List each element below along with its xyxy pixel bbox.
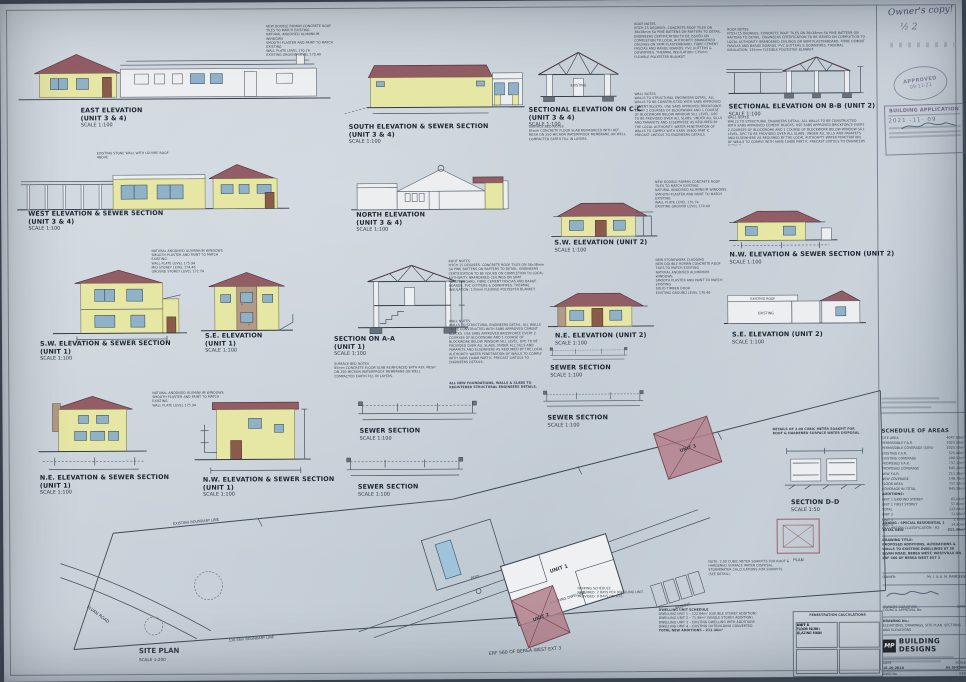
caption-east-elevation: EAST ELEVATION(UNIT 3 & 4)SCALE 1:100 bbox=[81, 107, 143, 129]
svg-text:SCALE 1:200: SCALE 1:200 bbox=[139, 657, 166, 662]
illegible-stamp-text bbox=[881, 394, 964, 425]
caption-se-unit2: S.E. ELEVATION (UNIT 2)SCALE 1:100 bbox=[732, 331, 823, 346]
owner-signature bbox=[883, 586, 943, 600]
surface-bed-notes-cc: SURFACE BED NOTES 85mm CONCRETE FLOOR SL… bbox=[529, 124, 629, 147]
scanned-sheet-photo: EAST ELEVATION(UNIT 3 & 4)SCALE 1:100 NE… bbox=[0, 0, 966, 682]
svg-text:EXISTING: EXISTING bbox=[758, 311, 774, 315]
sw-elevation-unit1-drawing bbox=[47, 265, 192, 344]
soakpit-note: NOTE: 2.00 CUBIC METER SOAKPITS FOR ROOF… bbox=[708, 559, 790, 586]
parking-schedule-note: PARKING SCHEDULE REQUIRED: 2 BAYS PER DW… bbox=[578, 586, 648, 622]
sw-elevation-unit2-drawing bbox=[547, 192, 662, 245]
callouts-south-elevation: NEW DOUBLE ROMAN CONCRETE ROOF TILES TO … bbox=[266, 24, 336, 90]
zoning-box: ZONING : SPECIAL RESIDENTIAL 1 OCCUPATIO… bbox=[882, 518, 965, 537]
caption-se-unit1: S.E. ELEVATION(UNIT 1)SCALE 1:100 bbox=[205, 332, 263, 354]
svg-text:ELVAN ROAD: ELVAN ROAD bbox=[86, 604, 110, 624]
svg-text:130.56m BOUNDARY LINE: 130.56m BOUNDARY LINE bbox=[229, 635, 275, 642]
mp-logo-icon: MP bbox=[883, 639, 896, 652]
wall-notes-bb: WALL NOTES WALLS TO STRUCTURAL ENGINEERS… bbox=[728, 115, 866, 146]
callouts-sw-unit2: NEW DOUBLE ROMAN CONCRETE ROOF TILES TO … bbox=[655, 180, 727, 238]
fen-unit2-cell: UNIT 2FLOOR 71.96GLAZING 11.10 bbox=[838, 622, 880, 648]
fen-unit4-cell: UNIT 4FLOOR 14.80GLAZING 2.40 bbox=[838, 648, 880, 674]
nw-elevation-unit2-drawing bbox=[725, 202, 843, 251]
svg-text:POOL: POOL bbox=[470, 574, 481, 581]
building-application-stamp: BUILDING APPLICATION 2021 -11- 09 bbox=[884, 103, 966, 156]
caption-sw-unit2: S.W. ELEVATION (UNIT 2)SCALE 1:100 bbox=[554, 239, 647, 254]
se-elevation-unit2-drawing: EXISTING ROOF EXISTING bbox=[720, 281, 870, 332]
handwritten-numbers: ½ 2 bbox=[900, 22, 917, 32]
caption-section-aa: SECTION ON A-A(UNIT 1)SCALE 1:100 bbox=[334, 336, 395, 358]
pencil-marks bbox=[890, 42, 954, 47]
sectional-elevation-bb-drawing bbox=[720, 49, 870, 102]
caption-nw-unit2: N.W. ELEVATION & SEWER SECTION (UNIT 2)S… bbox=[729, 250, 894, 265]
sewer-section-a-drawing bbox=[546, 342, 631, 365]
caption-north-elevation: NORTH ELEVATION(UNIT 3 & 4)SCALE 1:100 bbox=[356, 211, 425, 233]
dwg-rev-box: DWG No.REV bbox=[883, 670, 966, 678]
svg-text:ERF 560 OF BEREA WEST EXT 3: ERF 560 OF BEREA WEST EXT 3 bbox=[489, 645, 562, 657]
svg-text:EXISTING: EXISTING bbox=[571, 83, 587, 87]
caption-sewer-a: SEWER SECTIONSCALE 1:100 bbox=[550, 364, 611, 378]
caption-sw-unit1: S.W. ELEVATION & SEWER SECTION(UNIT 1)SC… bbox=[40, 340, 171, 362]
svg-text:EXISTING ROOF: EXISTING ROOF bbox=[750, 297, 775, 301]
caption-west-elevation: WEST ELEVATION & SEWER SECTION(UNIT 3 & … bbox=[28, 210, 163, 232]
roof-notes-bb: ROOF NOTES PITCH 15 DEGREES. CONCRETE RO… bbox=[727, 27, 865, 52]
se-elevation-unit1-drawing bbox=[197, 264, 297, 339]
signature-box: OWNERS SIGNATUREDATE bbox=[883, 584, 966, 608]
drawing-sheet: EAST ELEVATION(UNIT 3 & 4)SCALE 1:100 NE… bbox=[0, 0, 966, 682]
wall-notes-aa: WALL NOTES WALLS TO STRUCTURAL ENGINEERS… bbox=[449, 319, 545, 380]
svg-text:SITE PLAN: SITE PLAN bbox=[139, 647, 180, 655]
project-title-box: DRAWING TITLE: PROPOSED ADDITIONS, ALTER… bbox=[882, 535, 965, 574]
stamp-signature bbox=[895, 118, 961, 132]
schedule-of-areas: SCHEDULE OF AREAS SITE AREA4047.00m² PER… bbox=[882, 428, 966, 517]
fen-un3-cell: UNIT 3FLOOR 64.30GLAZING 9.80 bbox=[796, 648, 838, 674]
south-elevation-drawing bbox=[336, 51, 526, 122]
sectional-elevation-cc-drawing: EXISTING bbox=[528, 42, 628, 105]
roof-notes-cc: ROOF NOTES PITCH 15 DEGREES. CONCRETE RO… bbox=[634, 22, 722, 87]
wall-notes-cc: WALL NOTES WALLS TO STRUCTURAL ENGINEERS… bbox=[634, 92, 722, 145]
north-elevation-drawing bbox=[345, 157, 510, 218]
fenestration-table: FENESTRATION CALCULATIONS UNIT 1FLOOR 12… bbox=[793, 611, 883, 678]
dwelling-schedule: DWELLING UNIT SCHEDULE DWELLING UNIT 1 –… bbox=[659, 607, 793, 678]
ne-elevation-unit2-drawing bbox=[544, 282, 659, 335]
roof-notes-aa: ROOF NOTES PITCH 15 DEGREES. CONCRETE RO… bbox=[449, 259, 545, 316]
callouts-ne-unit2: NEW STONEWORK CLADDING NEW DOUBLE ROMAN … bbox=[656, 258, 726, 322]
caption-south-elevation: SOUTH ELEVATION & SEWER SECTION(UNIT 3 &… bbox=[349, 123, 489, 145]
